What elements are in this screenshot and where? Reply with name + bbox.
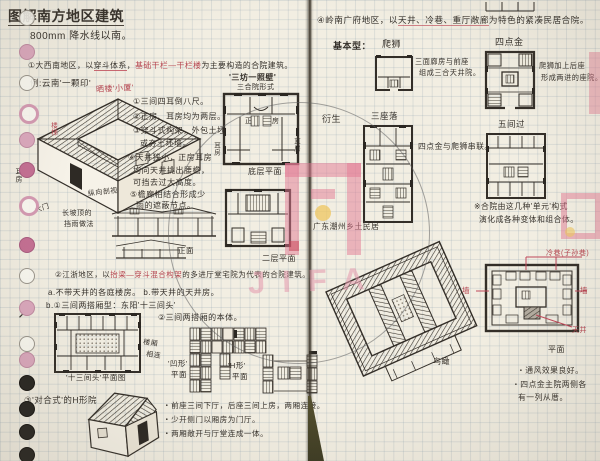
sidianjin-label: 四点金 xyxy=(495,37,524,47)
binder-dot xyxy=(19,10,35,26)
pashi-note-2: 组成三合天井院。 xyxy=(419,69,481,77)
wall-right-label: 墙 xyxy=(580,287,588,296)
right-header-emphasis: 天井、冷巷、重厅敞廊 xyxy=(398,15,489,26)
birdseye-label: 鸟瞰 xyxy=(433,357,450,366)
right-header-pre: ④岭南广府地区，以 xyxy=(317,15,398,25)
sketch-duihe-axonometric xyxy=(87,390,160,460)
section2-pre: ②江浙地区，以 xyxy=(55,270,110,279)
example-yikeyin: 例:云南'一颗印' xyxy=(30,79,91,89)
section2-red: 抬梁—穿斗混合构架 xyxy=(110,270,182,279)
section1-heading: ①大西南地区，以穿斗体系，基础干栏—干栏楼为主要构造的合院建筑。 xyxy=(28,62,293,71)
watermark-dot xyxy=(315,205,331,221)
sketch-plan-shisanjiantou xyxy=(54,313,141,373)
binder-dot xyxy=(19,424,35,440)
combo-note-1: ※合院由这几种'单元'构式 xyxy=(474,203,568,212)
binder-dot xyxy=(19,237,35,253)
sketch-plan-pashi xyxy=(376,55,412,91)
sketch-plan-wujianguo xyxy=(486,134,546,198)
section1-post: 为主要构造的合院建筑。 xyxy=(201,61,292,70)
right-header: ④岭南广府地区，以天井、冷巷、重厅敞廊为特色的紧凑民居合院。 xyxy=(317,16,589,26)
watermark-edge-fragment xyxy=(560,50,600,170)
binder-dot xyxy=(19,352,35,368)
rainfall-note: 800mm 降水线以南。 xyxy=(30,31,132,43)
shape-label-u1: '凹形' xyxy=(168,360,188,369)
slope-note-1: 长坡顶的 xyxy=(62,210,92,218)
section3-heading: ③'对合式'的H形院 xyxy=(24,396,97,406)
pashi-note-1: 三面廊房与前座 xyxy=(415,58,469,66)
section2-b1: b.①三间两搭厢型：东阳'十三间头' xyxy=(46,301,176,310)
binder-dot xyxy=(19,75,35,91)
binder-dot xyxy=(19,44,35,60)
binder-dot xyxy=(19,268,35,284)
watermark-text: JIFA xyxy=(247,261,382,302)
shape-label-u2: 平面 xyxy=(171,371,187,380)
binder-dot xyxy=(19,401,35,417)
plan1-subtitle: 三合院形式 xyxy=(237,84,275,92)
right-bullet-1: ・通风效果良好。 xyxy=(517,367,583,376)
right-header-post: 为特色的紧凑民居合院。 xyxy=(489,15,589,25)
shape-label-h2: 平面 xyxy=(232,373,248,382)
left-bullet-2: ・少开侧门以厢房为门厅。 xyxy=(163,416,260,425)
wujianguo-label: 五间过 xyxy=(498,120,525,130)
section1-pre: ①大西南地区，以 xyxy=(28,61,94,70)
base-type-label: 基本型： xyxy=(333,41,371,51)
sketch-fragment-top xyxy=(486,2,534,11)
slope-note-2: 挡雨做法 xyxy=(64,221,94,229)
binder-dot xyxy=(19,196,39,216)
wall-left-label: 墙 xyxy=(462,287,470,296)
note-1: ①三间四耳倒八尺。 xyxy=(133,97,209,106)
notebook-photo: 图解南方地区建筑 800mm 降水线以南。 ①大西南地区，以穿斗体系，基础干栏—… xyxy=(0,0,600,461)
plan-caption: 平面 xyxy=(548,345,565,354)
note-2: ②正房、耳房均为两层。 xyxy=(133,112,226,121)
sketch-plan-chaozhou xyxy=(476,257,587,331)
note-3b: 或夯土坯墙。 xyxy=(140,139,191,148)
left-bullet-3: ・两厢敞开与厅堂连成一体。 xyxy=(163,430,268,439)
sketch-plan-sidianjin xyxy=(485,52,535,110)
red-lane-label: 冷巷(子孙巷) xyxy=(546,250,589,258)
pashi-label: 爬狮 xyxy=(382,39,401,49)
binder-dot xyxy=(19,447,35,461)
serial-note: 四点金与爬狮串联。 xyxy=(418,143,493,152)
right-bullet-3: 有一列从厝。 xyxy=(518,394,568,403)
section1-red: 基础干栏—干栏楼 xyxy=(135,61,201,70)
binder-dot xyxy=(19,104,39,124)
sanzuoluo-label: 三座落 xyxy=(371,112,398,122)
right-bullet-2: ・四点金主院两侧各 xyxy=(512,381,587,390)
binder-dot xyxy=(19,375,35,391)
section1-underlined: 穿斗体系 xyxy=(94,61,127,71)
plan3-caption: '十三间头'平面图 xyxy=(66,374,126,383)
binder-dot xyxy=(19,132,35,148)
plan1-title: '三坊一照壁' xyxy=(229,73,276,82)
binder-dot xyxy=(19,162,35,178)
left-bullet-1: ・前座三间下厅，后座三间上房，两厢连接。 xyxy=(163,402,325,411)
tianjing-label: 天井 xyxy=(572,327,587,335)
binder-dot xyxy=(19,336,35,352)
watermark-edge-fragment-2 xyxy=(560,192,600,240)
shape-label-h1: 'H形' xyxy=(228,362,246,371)
label-stair: 楼梯 xyxy=(49,122,56,136)
binder-dot xyxy=(19,300,35,316)
